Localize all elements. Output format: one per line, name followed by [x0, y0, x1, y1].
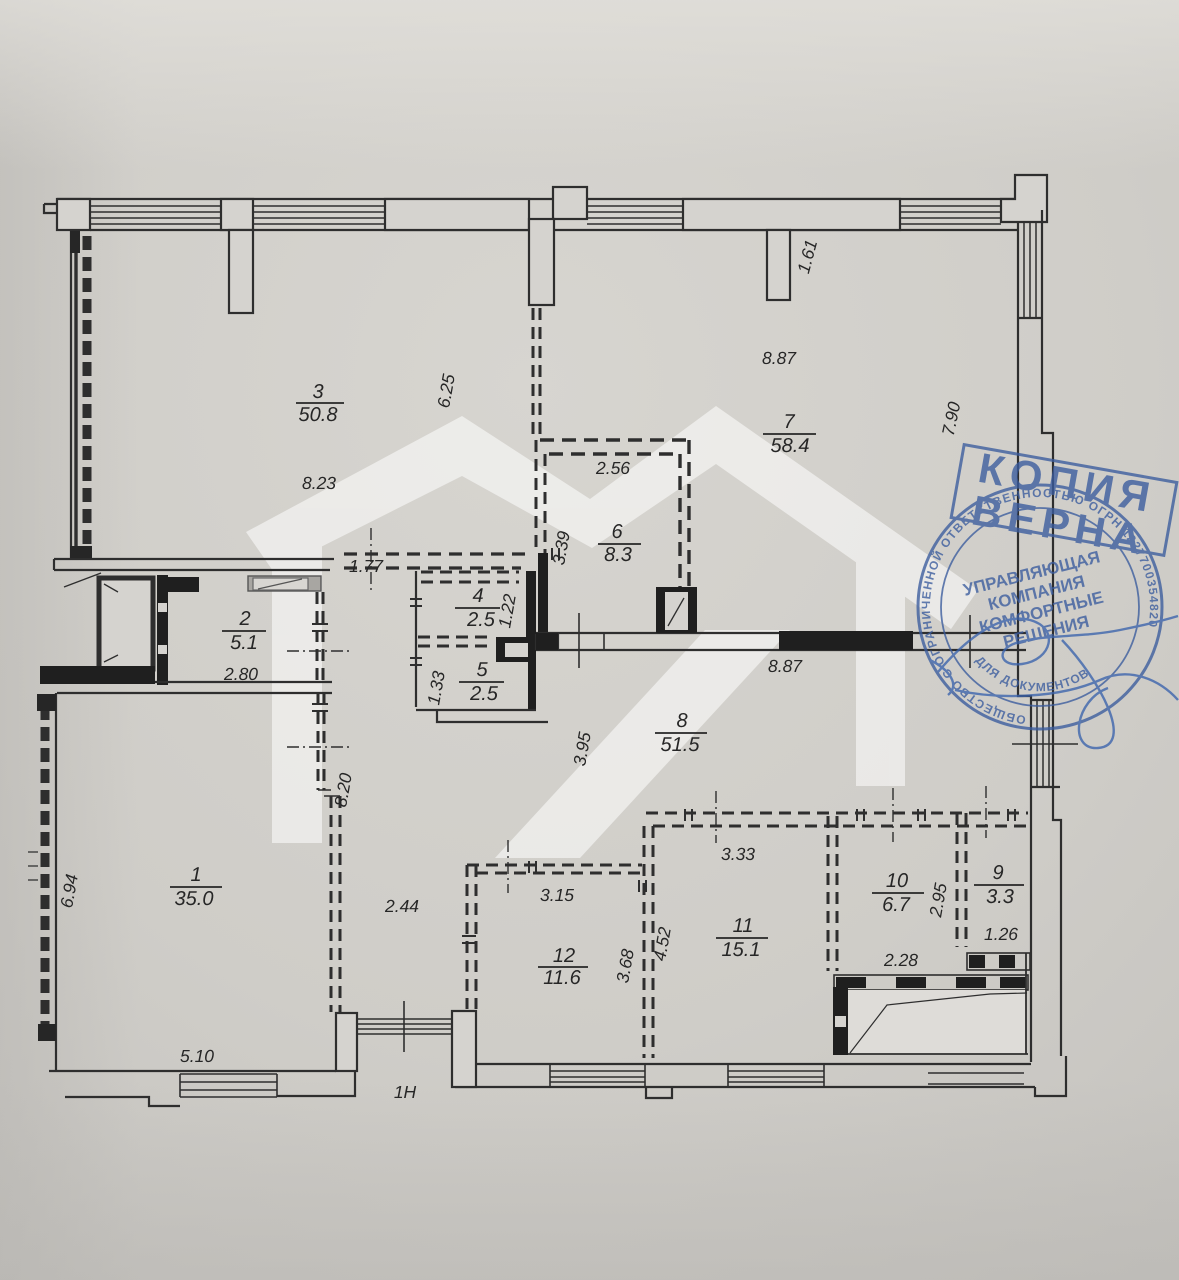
svg-text:3.3: 3.3 [986, 886, 1014, 908]
svg-text:8.3: 8.3 [604, 544, 632, 566]
svg-text:2.28: 2.28 [883, 950, 918, 970]
svg-text:6: 6 [611, 521, 623, 543]
svg-text:5: 5 [476, 659, 488, 681]
svg-text:3.15: 3.15 [540, 885, 574, 905]
svg-text:5.10: 5.10 [180, 1046, 214, 1066]
svg-text:8.87: 8.87 [762, 348, 797, 368]
svg-text:1.26: 1.26 [984, 924, 1018, 944]
svg-text:50.8: 50.8 [299, 404, 338, 426]
svg-text:6.7: 6.7 [882, 894, 911, 916]
svg-text:1: 1 [190, 864, 201, 886]
svg-text:2.5: 2.5 [466, 609, 496, 631]
svg-text:2.56: 2.56 [595, 458, 630, 478]
svg-text:7: 7 [783, 411, 795, 433]
svg-text:12: 12 [553, 945, 575, 967]
svg-text:5.1: 5.1 [230, 632, 258, 654]
svg-text:4: 4 [472, 585, 483, 607]
svg-text:8.23: 8.23 [302, 473, 336, 493]
svg-text:8: 8 [676, 710, 687, 732]
svg-text:2.44: 2.44 [384, 896, 419, 916]
svg-text:1Н: 1Н [394, 1082, 417, 1102]
svg-text:58.4: 58.4 [771, 435, 810, 457]
svg-text:11: 11 [733, 915, 754, 937]
svg-text:1.77: 1.77 [349, 556, 384, 576]
svg-text:3: 3 [312, 381, 323, 403]
svg-text:2: 2 [238, 608, 250, 630]
svg-text:9: 9 [992, 862, 1003, 884]
svg-text:3.33: 3.33 [721, 844, 755, 864]
svg-text:35.0: 35.0 [175, 888, 214, 910]
svg-text:11.6: 11.6 [543, 967, 581, 989]
svg-text:2.80: 2.80 [223, 664, 258, 684]
svg-text:8.87: 8.87 [768, 656, 803, 676]
svg-text:10: 10 [886, 870, 908, 892]
svg-text:15.1: 15.1 [722, 939, 761, 961]
svg-text:2.5: 2.5 [469, 683, 499, 705]
svg-text:51.5: 51.5 [661, 734, 701, 756]
